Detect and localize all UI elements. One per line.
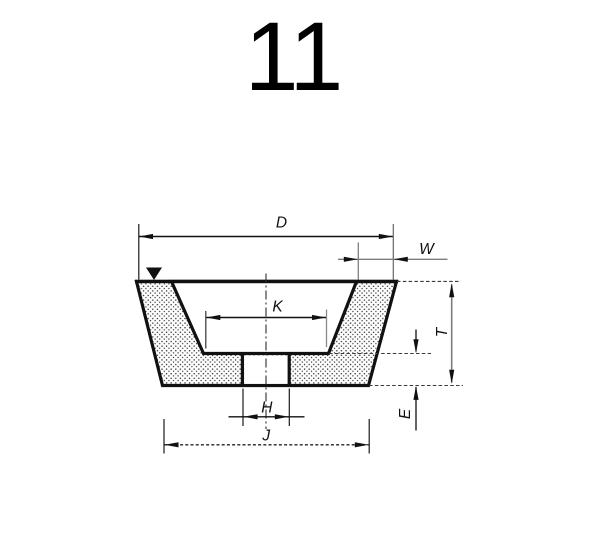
dim-e-arrow-down-icon <box>413 339 418 353</box>
dim-w-arrow-left-icon <box>344 257 358 262</box>
dim-label-w: W <box>419 241 435 258</box>
dim-label-k: K <box>272 299 283 316</box>
dim-h-arrow-right-icon <box>275 414 289 419</box>
dim-label-d: D <box>276 215 287 232</box>
dim-t-arrow-top-icon <box>449 283 454 297</box>
dimension-j: J <box>164 419 369 454</box>
dim-h-arrow-left-icon <box>244 414 258 419</box>
wheel-diagram: D W K H J T <box>0 0 602 533</box>
dimension-d: D <box>139 215 393 280</box>
dim-label-h: H <box>261 400 273 417</box>
dim-t-arrow-bottom-icon <box>449 370 454 384</box>
dim-label-e: E <box>397 408 414 419</box>
dim-w-arrow-right-icon <box>394 257 408 262</box>
dim-e-arrow-up-icon <box>413 386 418 400</box>
dim-label-j: J <box>261 428 270 445</box>
surface-finish-mark-icon <box>146 268 162 281</box>
dim-j-arrow-left-icon <box>165 442 179 447</box>
dimension-t: T <box>434 283 454 384</box>
dim-label-t: T <box>434 326 451 337</box>
dimension-e: E <box>397 330 419 431</box>
dim-j-arrow-right-icon <box>355 442 369 447</box>
dim-d-arrow-left-icon <box>139 234 153 239</box>
dim-d-arrow-right-icon <box>379 234 393 239</box>
